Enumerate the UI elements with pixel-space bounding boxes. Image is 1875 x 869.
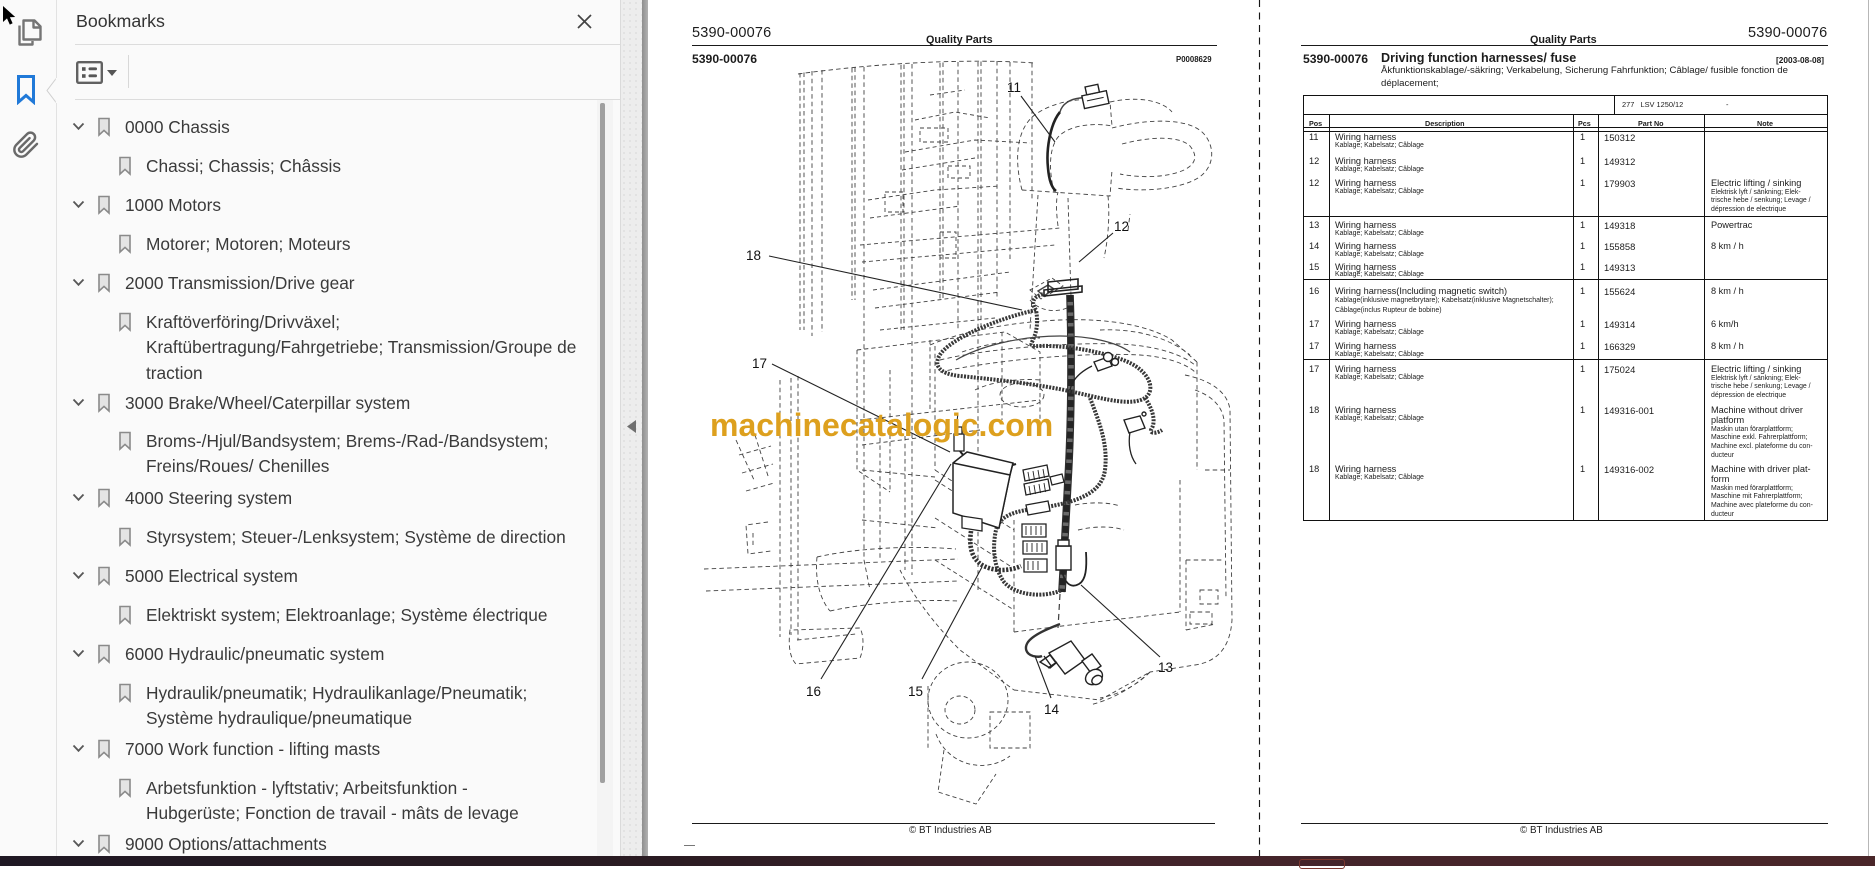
svg-text:11: 11 xyxy=(1007,80,1021,95)
svg-text:14: 14 xyxy=(1044,702,1060,717)
svg-text:16: 16 xyxy=(806,684,821,699)
svg-text:18: 18 xyxy=(746,248,761,263)
svg-text:13: 13 xyxy=(1158,660,1173,675)
svg-text:17: 17 xyxy=(752,356,767,371)
svg-text:15: 15 xyxy=(908,684,923,699)
svg-text:12: 12 xyxy=(1114,219,1129,234)
